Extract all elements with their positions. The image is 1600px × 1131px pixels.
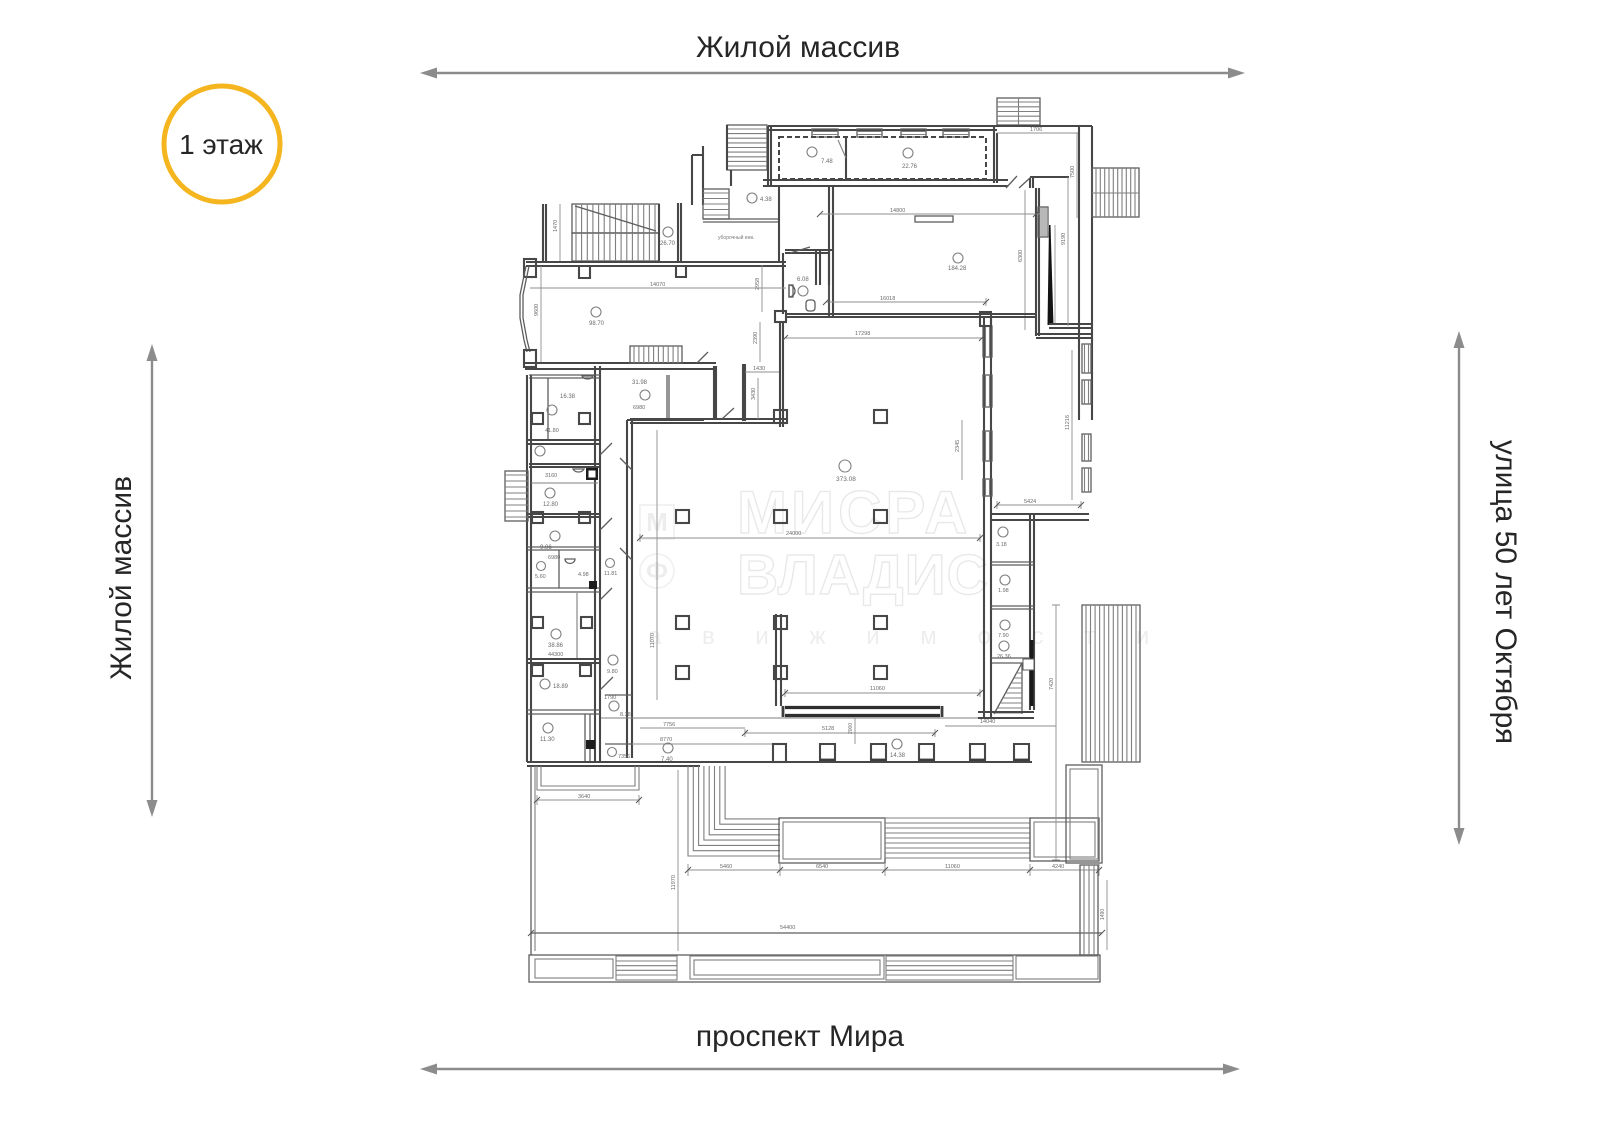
svg-text:уборочный инв.: уборочный инв. bbox=[718, 234, 754, 241]
svg-text:184.28: 184.28 bbox=[948, 266, 967, 272]
svg-text:7756: 7756 bbox=[663, 722, 675, 728]
svg-text:373.08: 373.08 bbox=[836, 476, 856, 483]
svg-text:5424: 5424 bbox=[1024, 499, 1036, 505]
svg-text:11070: 11070 bbox=[650, 633, 656, 648]
svg-text:1706: 1706 bbox=[1030, 127, 1042, 133]
svg-text:1470: 1470 bbox=[553, 220, 559, 232]
svg-text:4240: 4240 bbox=[1052, 864, 1064, 870]
svg-text:24000: 24000 bbox=[786, 531, 801, 537]
svg-text:11.81: 11.81 bbox=[604, 571, 617, 577]
svg-text:14800: 14800 bbox=[890, 208, 905, 214]
svg-text:Жилой массив: Жилой массив bbox=[696, 31, 900, 64]
svg-text:7.48: 7.48 bbox=[821, 159, 833, 165]
svg-text:1490: 1490 bbox=[1100, 909, 1106, 920]
svg-text:2390: 2390 bbox=[753, 332, 759, 344]
svg-text:8.38: 8.38 bbox=[620, 712, 631, 718]
svg-text:44300: 44300 bbox=[548, 652, 563, 658]
svg-text:18.89: 18.89 bbox=[553, 684, 569, 690]
svg-text:98.70: 98.70 bbox=[589, 321, 605, 327]
svg-text:11216: 11216 bbox=[1065, 415, 1071, 430]
svg-text:1430: 1430 bbox=[753, 366, 765, 372]
svg-text:54400: 54400 bbox=[780, 925, 795, 931]
svg-text:14040: 14040 bbox=[980, 719, 995, 725]
svg-text:3640: 3640 bbox=[578, 794, 590, 800]
svg-text:5128: 5128 bbox=[822, 726, 834, 732]
svg-text:МИСРА: МИСРА bbox=[737, 479, 972, 546]
svg-text:а в и ж и м о с т и: а в и ж и м о с т и bbox=[648, 623, 1166, 650]
svg-text:3.18: 3.18 bbox=[996, 542, 1007, 548]
svg-text:22.76: 22.76 bbox=[902, 164, 918, 170]
svg-text:9.80: 9.80 bbox=[607, 669, 618, 675]
svg-text:31.98: 31.98 bbox=[632, 380, 648, 386]
svg-text:7500: 7500 bbox=[1070, 166, 1076, 178]
svg-text:16.38: 16.38 bbox=[560, 394, 576, 400]
svg-text:7420: 7420 bbox=[1049, 678, 1055, 690]
svg-text:41.80: 41.80 bbox=[545, 428, 559, 434]
svg-text:4.38: 4.38 bbox=[760, 197, 772, 203]
svg-text:7356: 7356 bbox=[618, 754, 630, 760]
svg-text:2000: 2000 bbox=[848, 723, 854, 734]
svg-text:12.80: 12.80 bbox=[543, 502, 559, 508]
svg-text:5.60: 5.60 bbox=[535, 574, 546, 580]
svg-text:9190: 9190 bbox=[1061, 233, 1067, 245]
svg-text:улица 50 лет Октября: улица 50 лет Октября bbox=[1489, 440, 1522, 744]
svg-text:1 этаж: 1 этаж bbox=[179, 129, 263, 160]
svg-text:11060: 11060 bbox=[870, 686, 885, 692]
svg-text:проспект Мира: проспект Мира bbox=[696, 1020, 905, 1053]
svg-text:ВЛАДИС: ВЛАДИС bbox=[737, 543, 989, 607]
svg-text:5460: 5460 bbox=[720, 864, 732, 870]
svg-text:26.70: 26.70 bbox=[660, 241, 676, 247]
svg-text:7.90: 7.90 bbox=[998, 633, 1009, 639]
svg-text:9600: 9600 bbox=[534, 304, 540, 316]
svg-text:8770: 8770 bbox=[660, 737, 672, 743]
svg-text:14.38: 14.38 bbox=[890, 753, 906, 759]
svg-text:2958: 2958 bbox=[755, 278, 761, 290]
svg-text:4.98: 4.98 bbox=[578, 572, 589, 578]
svg-text:1790: 1790 bbox=[604, 695, 616, 701]
svg-text:14070: 14070 bbox=[650, 282, 665, 288]
svg-text:6300: 6300 bbox=[1018, 250, 1024, 262]
svg-text:3430: 3430 bbox=[751, 388, 757, 400]
svg-text:Жилой массив: Жилой массив bbox=[105, 476, 138, 680]
svg-text:11.30: 11.30 bbox=[540, 737, 555, 743]
svg-text:16018: 16018 bbox=[880, 296, 895, 302]
svg-text:11970: 11970 bbox=[671, 875, 677, 890]
svg-text:11060: 11060 bbox=[945, 864, 960, 870]
svg-text:2345: 2345 bbox=[955, 440, 961, 452]
svg-text:26.36: 26.36 bbox=[997, 654, 1011, 660]
svg-text:17298: 17298 bbox=[855, 331, 870, 337]
svg-text:38.86: 38.86 bbox=[548, 643, 564, 649]
svg-text:6980: 6980 bbox=[633, 405, 645, 411]
svg-text:3160: 3160 bbox=[545, 473, 557, 479]
svg-text:1.98: 1.98 bbox=[998, 588, 1009, 594]
svg-text:6.08: 6.08 bbox=[797, 277, 809, 283]
svg-text:6540: 6540 bbox=[816, 864, 828, 870]
